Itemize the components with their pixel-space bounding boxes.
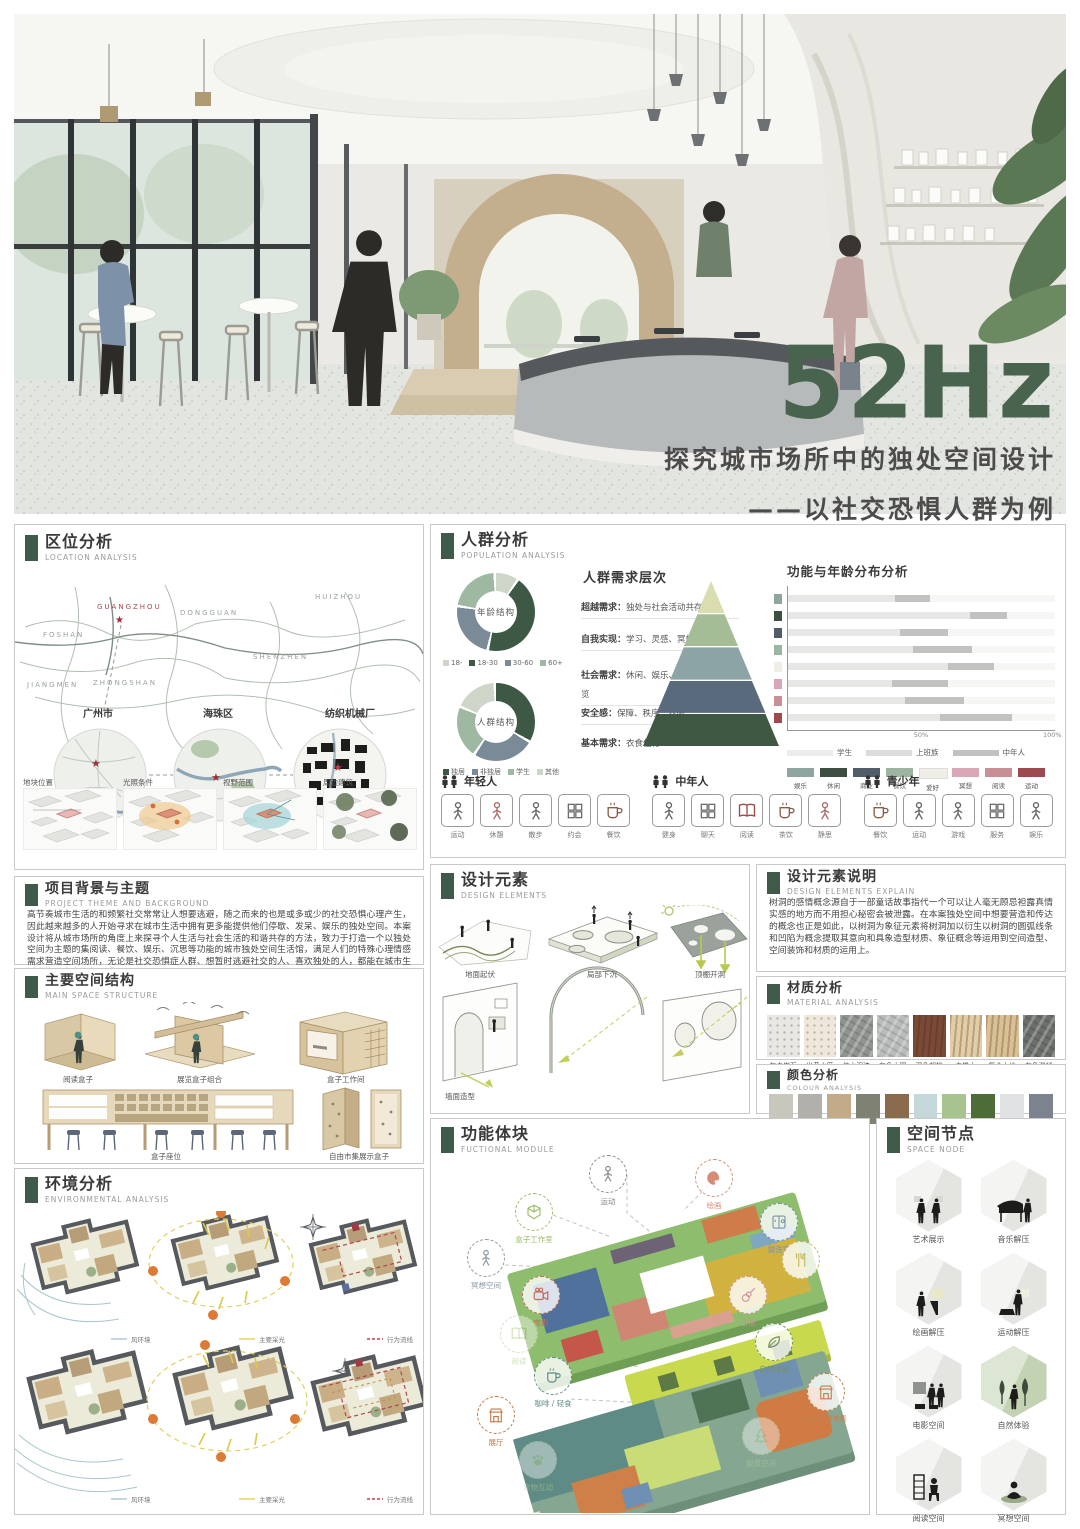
people-icon bbox=[864, 775, 882, 788]
section-environmental-analysis: 环境分析 ENVIRONMENTAL ANALYSIS bbox=[14, 1168, 424, 1515]
badge-exhibition: 展厅 bbox=[476, 1396, 516, 1448]
badge-meditation: 冥想空间 bbox=[466, 1239, 506, 1291]
guangzhou-star-icon: ★ bbox=[115, 615, 124, 626]
node-sport: 运动解压 bbox=[976, 1253, 1051, 1342]
section-title: 空间节点 bbox=[907, 1125, 975, 1143]
section-header: 区位分析 LOCATION ANALYSIS bbox=[15, 525, 423, 562]
map-city-guangzhou: GUANGZHOU bbox=[97, 603, 162, 611]
section-square-icon bbox=[25, 884, 38, 906]
group-name: 青少年 bbox=[887, 773, 920, 789]
thumb-label: 视野范围 bbox=[223, 777, 317, 788]
bar-row bbox=[788, 677, 1055, 690]
map-city-dongguan: DONGGUAN bbox=[180, 609, 238, 617]
x-tick-50: 50% bbox=[914, 731, 928, 739]
legend-wind: 风环境 bbox=[131, 1495, 151, 1504]
section-subtitle: PROJECT THEME AND BACKGROUND bbox=[45, 899, 209, 908]
function-age-chart: 功能与年龄分布分析 50% 100% 学生 上班族 中年人 娱乐 休闲 商业 餐… bbox=[787, 561, 1055, 792]
section-subtitle: MAIN SPACE STRUCTURE bbox=[45, 991, 158, 1000]
ceiling-openings-diagram bbox=[661, 905, 747, 972]
chart-title: 功能与年龄分布分析 bbox=[787, 561, 1055, 580]
work-box bbox=[300, 1012, 387, 1074]
site-thumb-location bbox=[23, 788, 117, 850]
site-thumb-surroundings bbox=[323, 788, 417, 850]
section-design-elements: 设计元素 DESIGN ELEMENTS bbox=[430, 864, 750, 1114]
legend-sun: 主要采光 bbox=[259, 1335, 286, 1344]
section-subtitle: LOCATION ANALYSIS bbox=[45, 553, 138, 562]
section-subtitle: COLOUR ANALYSIS bbox=[787, 1084, 862, 1092]
section-square-icon bbox=[887, 1127, 900, 1153]
section-square-icon bbox=[25, 976, 38, 998]
pyramid-layer bbox=[643, 647, 779, 679]
structure-label-3: 盒子座位 bbox=[151, 1151, 181, 1161]
legend-wind: 风环境 bbox=[131, 1335, 151, 1344]
group-teenagers: 青少年 餐饮 运动 游戏 服务 娱乐 bbox=[864, 773, 1057, 840]
ground-undulation-diagram bbox=[439, 920, 531, 965]
hero-subtitle-1: 探究城市场所中的独处空间设计 bbox=[664, 440, 1056, 476]
category-chip bbox=[774, 713, 782, 723]
hero-subtitle-2: ——以社交恐惧人群为例 bbox=[664, 490, 1056, 526]
group-name: 中年人 bbox=[675, 773, 708, 789]
palette-icon bbox=[695, 1159, 733, 1197]
dining-icon bbox=[864, 794, 897, 827]
badge-design-market: 自由设计市集 bbox=[806, 1373, 846, 1424]
section-square-icon bbox=[441, 873, 454, 899]
pyramid-layer bbox=[643, 614, 779, 646]
section-elements-explain: 设计元素说明 DESIGN ELEMENTS EXPLAIN 树洞的感情概念源自… bbox=[756, 864, 1066, 972]
section-subtitle: SPACE NODE bbox=[907, 1145, 975, 1154]
category-chip bbox=[774, 645, 782, 655]
wall-arch-diagram bbox=[443, 983, 517, 1088]
legend-circulation: 行为流线 bbox=[387, 1495, 414, 1504]
section-square-icon bbox=[441, 1127, 454, 1153]
section-square-icon bbox=[767, 984, 780, 1004]
bar-row bbox=[788, 609, 1055, 622]
group-young-adults: 年轻人 运动 休憩 散步 约会 餐饮 bbox=[441, 773, 634, 840]
section-location-analysis: 区位分析 LOCATION ANALYSIS FOSHAN GUANGZHOU … bbox=[14, 524, 424, 870]
pyramid-layer bbox=[643, 681, 779, 713]
badge-nature: 自然体验 bbox=[754, 1323, 794, 1375]
plan-floor2-wind bbox=[17, 1212, 139, 1322]
structure-label-1: 展览盒子组合 bbox=[177, 1074, 222, 1084]
camera-icon bbox=[522, 1276, 560, 1314]
paw-icon bbox=[519, 1441, 557, 1479]
thumb-label: 光照条件 bbox=[123, 777, 217, 788]
legend-sun: 主要采光 bbox=[259, 1495, 286, 1504]
bar-row bbox=[788, 694, 1055, 707]
section-subtitle: DESIGN ELEMENTS bbox=[461, 891, 547, 900]
section-colour-analysis: 颜色分析 COLOUR ANALYSIS bbox=[756, 1064, 1066, 1114]
circle-label-guangzhou: 广州市 bbox=[83, 707, 113, 720]
badge-painting: 绘画 bbox=[694, 1159, 734, 1211]
element-label-0: 地面起伏 bbox=[465, 969, 495, 979]
group-name: 年轻人 bbox=[464, 773, 497, 789]
section-subtitle: ENVIRONMENTAL ANALYSIS bbox=[45, 1195, 169, 1204]
tea-icon bbox=[769, 794, 802, 827]
exploded-axon bbox=[431, 1153, 869, 1513]
bar-row bbox=[788, 660, 1055, 673]
section-title: 材质分析 bbox=[787, 982, 879, 996]
people-icon bbox=[467, 1239, 505, 1277]
fitness-icon bbox=[652, 794, 685, 827]
structure-label-4: 自由市集展示盒子 bbox=[329, 1151, 389, 1161]
arch-curve-diagram bbox=[551, 968, 647, 1073]
section-square-icon bbox=[767, 1071, 780, 1089]
map-city-huizhou: HUIZHOU bbox=[315, 593, 362, 601]
node-art-display: 艺术展示 bbox=[891, 1160, 966, 1249]
cutlery-icon bbox=[782, 1241, 820, 1279]
people-icon bbox=[441, 775, 459, 788]
element-label-1: 局部下沉 bbox=[587, 969, 617, 979]
meditate-icon bbox=[808, 794, 841, 827]
reading-icon bbox=[730, 794, 763, 827]
section-square-icon bbox=[25, 535, 38, 561]
node-movie: 电影空间 bbox=[891, 1346, 966, 1435]
category-chip bbox=[774, 628, 782, 638]
plan-floor1-wind bbox=[15, 1342, 148, 1491]
pyramid-layer bbox=[643, 714, 779, 746]
map-city-jiangmen: JIANGMEN bbox=[26, 681, 78, 689]
game-icon bbox=[942, 794, 975, 827]
donut-center-label: 年龄结构 bbox=[457, 573, 535, 651]
reading-box bbox=[45, 1014, 115, 1070]
x-tick-100: 100% bbox=[1043, 731, 1062, 739]
plan-floor2-circulation bbox=[309, 1212, 418, 1297]
section-square-icon bbox=[441, 533, 454, 559]
badge-guitar: 吉他 bbox=[728, 1276, 768, 1328]
activity-groups: 年轻人 运动 休憩 散步 约会 餐饮 中年人 健身 聊天 阅读 茶饮 静思 bbox=[441, 773, 1057, 840]
group-middle-aged: 中年人 健身 聊天 阅读 茶饮 静思 bbox=[652, 773, 845, 840]
section-project-background: 项目背景与主题 PROJECT THEME AND BACKGROUND 高节奏… bbox=[14, 876, 424, 965]
thumb-label: 地块位置 bbox=[23, 777, 117, 788]
category-chip bbox=[774, 662, 782, 672]
space-node-grid: 艺术展示 音乐解压 绘画解压 运动解压 电影空间 自然体验 阅读空间 bbox=[877, 1154, 1065, 1529]
section-functional-module: 功能体块 FUCTIONAL MODULE bbox=[430, 1118, 870, 1515]
needs-pyramid bbox=[643, 581, 779, 747]
bar-row bbox=[788, 592, 1055, 605]
site-thumb-views bbox=[223, 788, 317, 850]
circle-label-factory: 纺织机械厂 bbox=[325, 707, 375, 720]
box-icon bbox=[515, 1193, 553, 1231]
badge-view-space: 观景空间 bbox=[741, 1417, 781, 1469]
chat-icon bbox=[691, 794, 724, 827]
star-icon: ★ bbox=[91, 757, 101, 770]
dining-icon bbox=[597, 794, 630, 827]
structure-illustrations: 阅读盒子 展览盒子组合 盒子工作间 盒子座位 自由市集展示盒子 bbox=[15, 1002, 423, 1162]
node-meditation: 冥想空间 bbox=[976, 1439, 1051, 1528]
badge-sport: 运动 bbox=[588, 1155, 628, 1207]
exercise-icon bbox=[589, 1155, 627, 1193]
bar-plot bbox=[787, 586, 1055, 731]
bar-row bbox=[788, 626, 1055, 639]
series-legend: 学生 上班族 中年人 bbox=[787, 747, 1055, 758]
category-chip bbox=[774, 594, 782, 604]
book-icon bbox=[500, 1315, 538, 1353]
market-display-boxes bbox=[323, 1088, 401, 1150]
partition-box-combo bbox=[145, 1002, 255, 1068]
design-element-diagrams: 地面起伏 局部下沉 顶棚开洞 墙面造型 bbox=[431, 905, 749, 1111]
structure-label-2: 盒子工作间 bbox=[327, 1074, 365, 1084]
node-painting: 绘画解压 bbox=[891, 1253, 966, 1342]
donut-center-label: 人群结构 bbox=[457, 683, 535, 761]
section-title: 环境分析 bbox=[45, 1175, 169, 1193]
section-title: 项目背景与主题 bbox=[45, 882, 209, 897]
section-title: 颜色分析 bbox=[787, 1069, 862, 1082]
section-title: 功能体块 bbox=[461, 1125, 555, 1143]
star-icon: ★ bbox=[333, 761, 343, 774]
box-seating bbox=[43, 1090, 293, 1150]
section-square-icon bbox=[25, 1177, 38, 1203]
wall-holes-diagram bbox=[663, 989, 747, 1081]
sport-icon bbox=[903, 794, 936, 827]
washroom-icon bbox=[760, 1203, 798, 1241]
age-structure-donut: 年龄结构 bbox=[457, 573, 535, 651]
section-title: 人群分析 bbox=[461, 531, 565, 549]
map-city-zhongshan: ZHONGSHAN bbox=[93, 679, 157, 687]
group-structure-donut: 人群结构 bbox=[457, 683, 535, 761]
market-icon bbox=[807, 1373, 845, 1411]
bar-row bbox=[788, 711, 1055, 724]
pyramid-layer bbox=[643, 581, 779, 613]
node-reading: 阅读空间 bbox=[891, 1439, 966, 1528]
node-nature: 自然体验 bbox=[976, 1346, 1051, 1435]
sunken-slab-diagram bbox=[549, 906, 657, 963]
site-thumb-sunlight bbox=[123, 788, 217, 850]
plan-floor1-circulation bbox=[310, 1347, 423, 1439]
section-subtitle: DESIGN ELEMENTS EXPLAIN bbox=[787, 887, 915, 896]
explain-paragraph: 树洞的感情概念源自于一部童话故事指代一个可以让人毫无顾忌袒露真情实感的地方而不用… bbox=[757, 896, 1065, 957]
structure-label-0: 阅读盒子 bbox=[63, 1074, 93, 1084]
tree-icon bbox=[742, 1417, 780, 1455]
badge-box-studio: 盒子工作室 bbox=[514, 1193, 554, 1245]
x-axis: 50% 100% bbox=[787, 731, 1055, 741]
section-material-analysis: 材质分析 MATERIAL ANALYSIS 灰白岩石 米黄水磨石 仿水泥漆 灰… bbox=[756, 976, 1066, 1060]
bar-row bbox=[788, 643, 1055, 656]
circle-label-haizhu: 海珠区 bbox=[203, 707, 233, 720]
section-title: 设计元素说明 bbox=[787, 870, 915, 885]
stall-icon bbox=[477, 1396, 515, 1434]
guitar-icon bbox=[729, 1276, 767, 1314]
date-icon bbox=[558, 794, 591, 827]
category-chip bbox=[774, 696, 782, 706]
section-space-node: 空间节点 SPACE NODE 艺术展示 音乐解压 绘画解压 运动解压 电影空间 bbox=[876, 1118, 1066, 1515]
design-poster: 52Hz 探究城市场所中的独处空间设计 ——以社交恐惧人群为例 区位分析 LOC… bbox=[0, 0, 1080, 1529]
legend-circulation: 行为流线 bbox=[387, 1335, 414, 1344]
rest-icon bbox=[480, 794, 513, 827]
plan-floor2-sun bbox=[148, 1211, 293, 1320]
walk-icon bbox=[519, 794, 552, 827]
section-title: 主要空间结构 bbox=[45, 974, 158, 989]
sport-icon bbox=[441, 794, 474, 827]
leaf-icon bbox=[755, 1323, 793, 1361]
plan-floor1-sun bbox=[147, 1338, 307, 1462]
people-icon bbox=[652, 775, 670, 788]
section-title: 区位分析 bbox=[45, 533, 138, 551]
section-square-icon bbox=[767, 872, 780, 894]
section-population-analysis: 人群分析 POPULATION ANALYSIS 年龄结构 18- 18-30 … bbox=[430, 524, 1066, 858]
category-chip bbox=[774, 611, 782, 621]
section-subtitle: POPULATION ANALYSIS bbox=[461, 551, 565, 560]
element-label-3: 墙面造型 bbox=[445, 1091, 475, 1101]
section-subtitle: MATERIAL ANALYSIS bbox=[787, 998, 879, 1007]
fun-icon bbox=[1020, 794, 1053, 827]
badge-solo-dining: 一人食 bbox=[781, 1241, 821, 1293]
node-music: 音乐解压 bbox=[976, 1160, 1051, 1249]
category-chip bbox=[774, 679, 782, 689]
map-city-foshan: FOSHAN bbox=[43, 631, 84, 639]
section-space-structure: 主要空间结构 MAIN SPACE STRUCTURE bbox=[14, 968, 424, 1164]
badge-coffee: 咖啡 / 轻食 bbox=[533, 1357, 573, 1409]
badge-pets: 宠物互动 bbox=[518, 1441, 558, 1493]
hero-render: 52Hz 探究城市场所中的独处空间设计 ——以社交恐惧人群为例 bbox=[14, 14, 1066, 514]
element-label-2: 顶棚开洞 bbox=[695, 969, 725, 979]
service-icon bbox=[981, 794, 1014, 827]
coffee-icon bbox=[534, 1357, 572, 1395]
age-donut-legend: 18- 18-30 30-60 60+ bbox=[443, 659, 563, 667]
environment-diagrams: 风环境 主要采光 行为流线 风环境 主要采光 行为流线 bbox=[15, 1211, 423, 1511]
section-title: 设计元素 bbox=[461, 871, 547, 889]
thumb-label: 周边建筑 bbox=[323, 777, 417, 788]
project-logo: 52Hz bbox=[664, 338, 1056, 428]
site-thumbnails: 地块位置 光照条件 bbox=[23, 777, 417, 854]
map-city-shenzhen: SHENZHEN bbox=[253, 653, 308, 661]
